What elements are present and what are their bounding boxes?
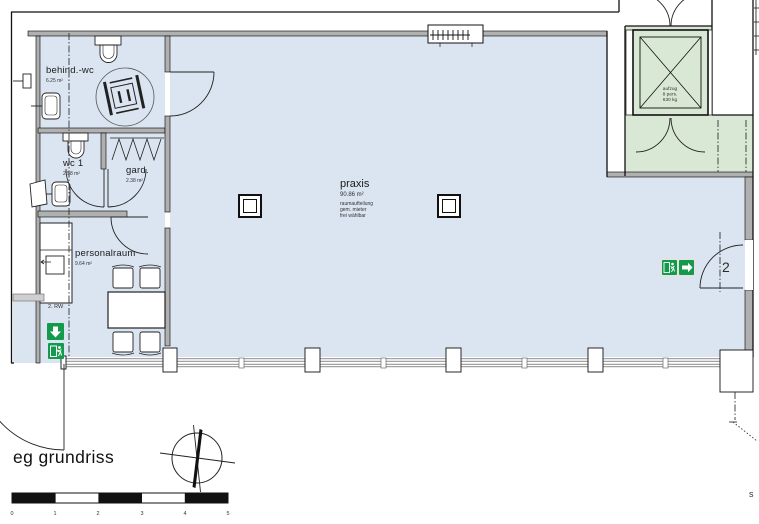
room-fill-entrance xyxy=(13,294,38,363)
scale-tick: 1 xyxy=(53,511,56,517)
floor-plan: aufzug 8 pers. 630 kg xyxy=(0,0,759,524)
wall-corridor-south xyxy=(607,172,753,177)
elevator-label: aufzug xyxy=(663,86,678,92)
column xyxy=(438,195,460,217)
elevator-load: 630 kg xyxy=(663,97,678,103)
chair xyxy=(113,332,133,352)
exit-sign-man-left xyxy=(48,343,64,359)
scale-tick: 4 xyxy=(183,511,186,517)
room-area-gard: 2.38 m² xyxy=(126,178,143,184)
north-compass xyxy=(160,425,235,492)
wall-praxis-west-a xyxy=(165,36,170,72)
pillar xyxy=(163,348,177,372)
chair xyxy=(140,332,160,352)
floor-plan-drawing: aufzug 8 pers. 630 kg xyxy=(0,0,759,524)
pillar xyxy=(446,348,461,372)
escape-route-threshold xyxy=(13,294,44,301)
room-label-gard: gard. xyxy=(126,165,149,176)
wall-east-lower xyxy=(745,290,753,357)
exit-sign-man-right xyxy=(662,260,677,275)
mullion xyxy=(381,358,386,368)
room-area-behind-wc: 6.25 m² xyxy=(46,78,63,84)
praxis-note-3: frei wählbar xyxy=(340,213,366,219)
scale-tick: 5 xyxy=(226,511,229,517)
scale-tick: 3 xyxy=(140,511,143,517)
stair-ticks xyxy=(754,0,759,55)
wall-east-upper xyxy=(745,177,753,240)
mullion xyxy=(663,358,668,368)
shaft-wall xyxy=(626,30,633,115)
door-entrance xyxy=(0,364,64,450)
room-label-behind-wc: behind.-wc xyxy=(46,65,94,76)
chair xyxy=(113,268,133,288)
scale-bar: 0 1 2 3 4 5 xyxy=(10,493,229,517)
room-fill-praxis xyxy=(170,33,607,357)
corner-pier xyxy=(720,350,753,392)
wall-praxis-west-c xyxy=(165,228,170,346)
wall-behindwc-south xyxy=(38,128,165,133)
wall-praxis-west-b xyxy=(165,116,170,212)
scale-tick: 0 xyxy=(10,511,13,517)
chair xyxy=(140,268,160,288)
pillar xyxy=(588,348,603,372)
door-number-label: 2 xyxy=(722,259,730,275)
page-title: eg grundriss xyxy=(13,447,114,467)
edge-label: s xyxy=(749,489,754,499)
scale-segment xyxy=(98,493,141,503)
elevator-capacity: 8 pers. xyxy=(663,92,678,98)
wall-wc-south xyxy=(38,211,127,217)
wall-wc-gard-divider xyxy=(101,133,106,169)
room-area-personalraum: 9.64 m² xyxy=(75,261,92,267)
mullion xyxy=(239,358,244,368)
dining-table xyxy=(108,292,165,328)
column xyxy=(239,195,261,217)
scale-segment xyxy=(185,493,228,503)
scale-tick: 2 xyxy=(96,511,99,517)
kitchen-counter xyxy=(40,223,72,303)
exit-sign-down xyxy=(47,323,64,340)
room-label-wc1: wc 1 xyxy=(62,158,83,169)
axis-diagonal xyxy=(733,422,757,441)
escape-route-label: 2. RW xyxy=(48,304,64,310)
room-area-praxis: 90.86 m² xyxy=(340,192,364,198)
wall-north xyxy=(28,31,607,36)
exit-sign-arrow-right xyxy=(679,260,694,275)
mullion xyxy=(522,358,527,368)
scale-segment xyxy=(12,493,55,503)
room-area-wc1: 2.58 m² xyxy=(63,171,80,177)
window-niche xyxy=(30,180,47,207)
room-label-praxis: praxis xyxy=(340,178,370,190)
room-label-personalraum: personalraum xyxy=(75,248,136,259)
pillar xyxy=(305,348,320,372)
